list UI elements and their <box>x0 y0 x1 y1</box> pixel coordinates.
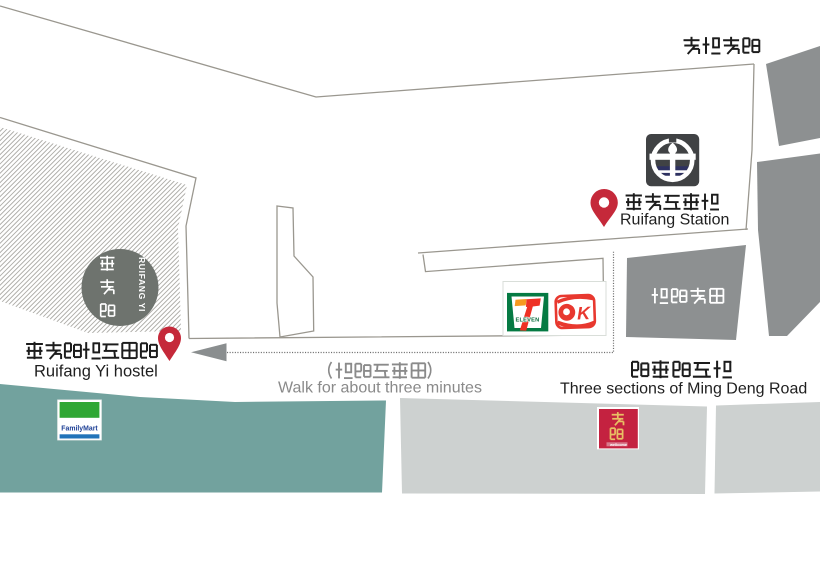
svg-text:RUIFANG YI: RUIFANG YI <box>137 257 147 312</box>
svg-text:Walk for about three minutes: Walk for about three minutes <box>278 380 482 397</box>
svg-text:wellcome: wellcome <box>609 443 627 447</box>
svg-text:FamilyMart: FamilyMart <box>61 426 98 433</box>
svg-text:Ruifang Station: Ruifang Station <box>620 212 729 229</box>
svg-text:ELEVEN: ELEVEN <box>516 317 540 323</box>
svg-text:Ruifang Yi hostel: Ruifang Yi hostel <box>34 363 158 381</box>
svg-text:Three sections of Ming Deng Ro: Three sections of Ming Deng Road <box>560 381 807 398</box>
